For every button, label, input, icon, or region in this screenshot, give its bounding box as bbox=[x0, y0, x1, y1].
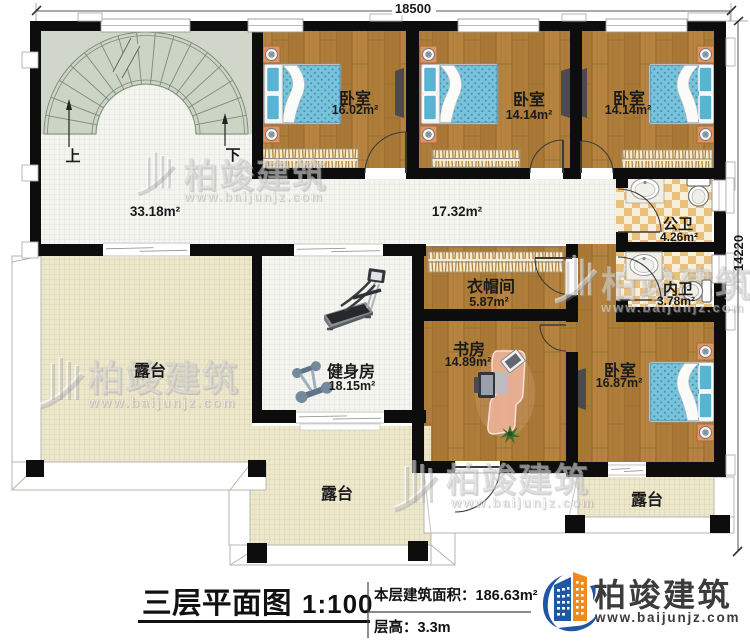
svg-text:17.32m²: 17.32m² bbox=[432, 204, 483, 219]
svg-text:露台: 露台 bbox=[631, 490, 663, 509]
svg-text:14.14m²: 14.14m² bbox=[506, 108, 553, 122]
svg-text:上: 上 bbox=[65, 148, 80, 165]
svg-text:卧室: 卧室 bbox=[513, 90, 545, 109]
svg-text:18.15m²: 18.15m² bbox=[329, 379, 376, 393]
svg-text:14.14m²: 14.14m² bbox=[605, 103, 652, 117]
svg-text:16.87m²: 16.87m² bbox=[596, 376, 643, 390]
svg-text:14220: 14220 bbox=[731, 235, 746, 271]
svg-text:www.baijunjz.com: www.baijunjz.com bbox=[87, 395, 237, 410]
svg-text:www.baijunjz.com: www.baijunjz.com bbox=[594, 610, 740, 625]
svg-text:本层建筑面积：186.63m²: 本层建筑面积：186.63m² bbox=[374, 586, 538, 604]
svg-text:3.78m²: 3.78m² bbox=[657, 294, 695, 308]
svg-text:柏竣建筑: 柏竣建筑 bbox=[594, 577, 732, 613]
svg-text:16.02m²: 16.02m² bbox=[332, 103, 379, 117]
svg-text:三层平面图: 三层平面图 bbox=[142, 587, 292, 620]
svg-text:4.26m²: 4.26m² bbox=[660, 230, 698, 244]
svg-text:衣帽间: 衣帽间 bbox=[467, 277, 515, 296]
svg-text:18500: 18500 bbox=[395, 1, 431, 16]
svg-text:露台: 露台 bbox=[134, 361, 166, 380]
svg-text:露台: 露台 bbox=[321, 484, 353, 503]
svg-text:层高：3.3m: 层高：3.3m bbox=[374, 618, 451, 636]
svg-text:33.18m²: 33.18m² bbox=[130, 204, 181, 219]
svg-text:www.baijunjz.com: www.baijunjz.com bbox=[183, 190, 324, 204]
svg-text:下: 下 bbox=[225, 147, 240, 164]
svg-text:1:100: 1:100 bbox=[302, 589, 374, 619]
svg-text:5.87m²: 5.87m² bbox=[469, 295, 509, 309]
svg-text:14.89m²: 14.89m² bbox=[445, 355, 492, 369]
svg-text:www.baijunjz.com: www.baijunjz.com bbox=[450, 495, 595, 510]
